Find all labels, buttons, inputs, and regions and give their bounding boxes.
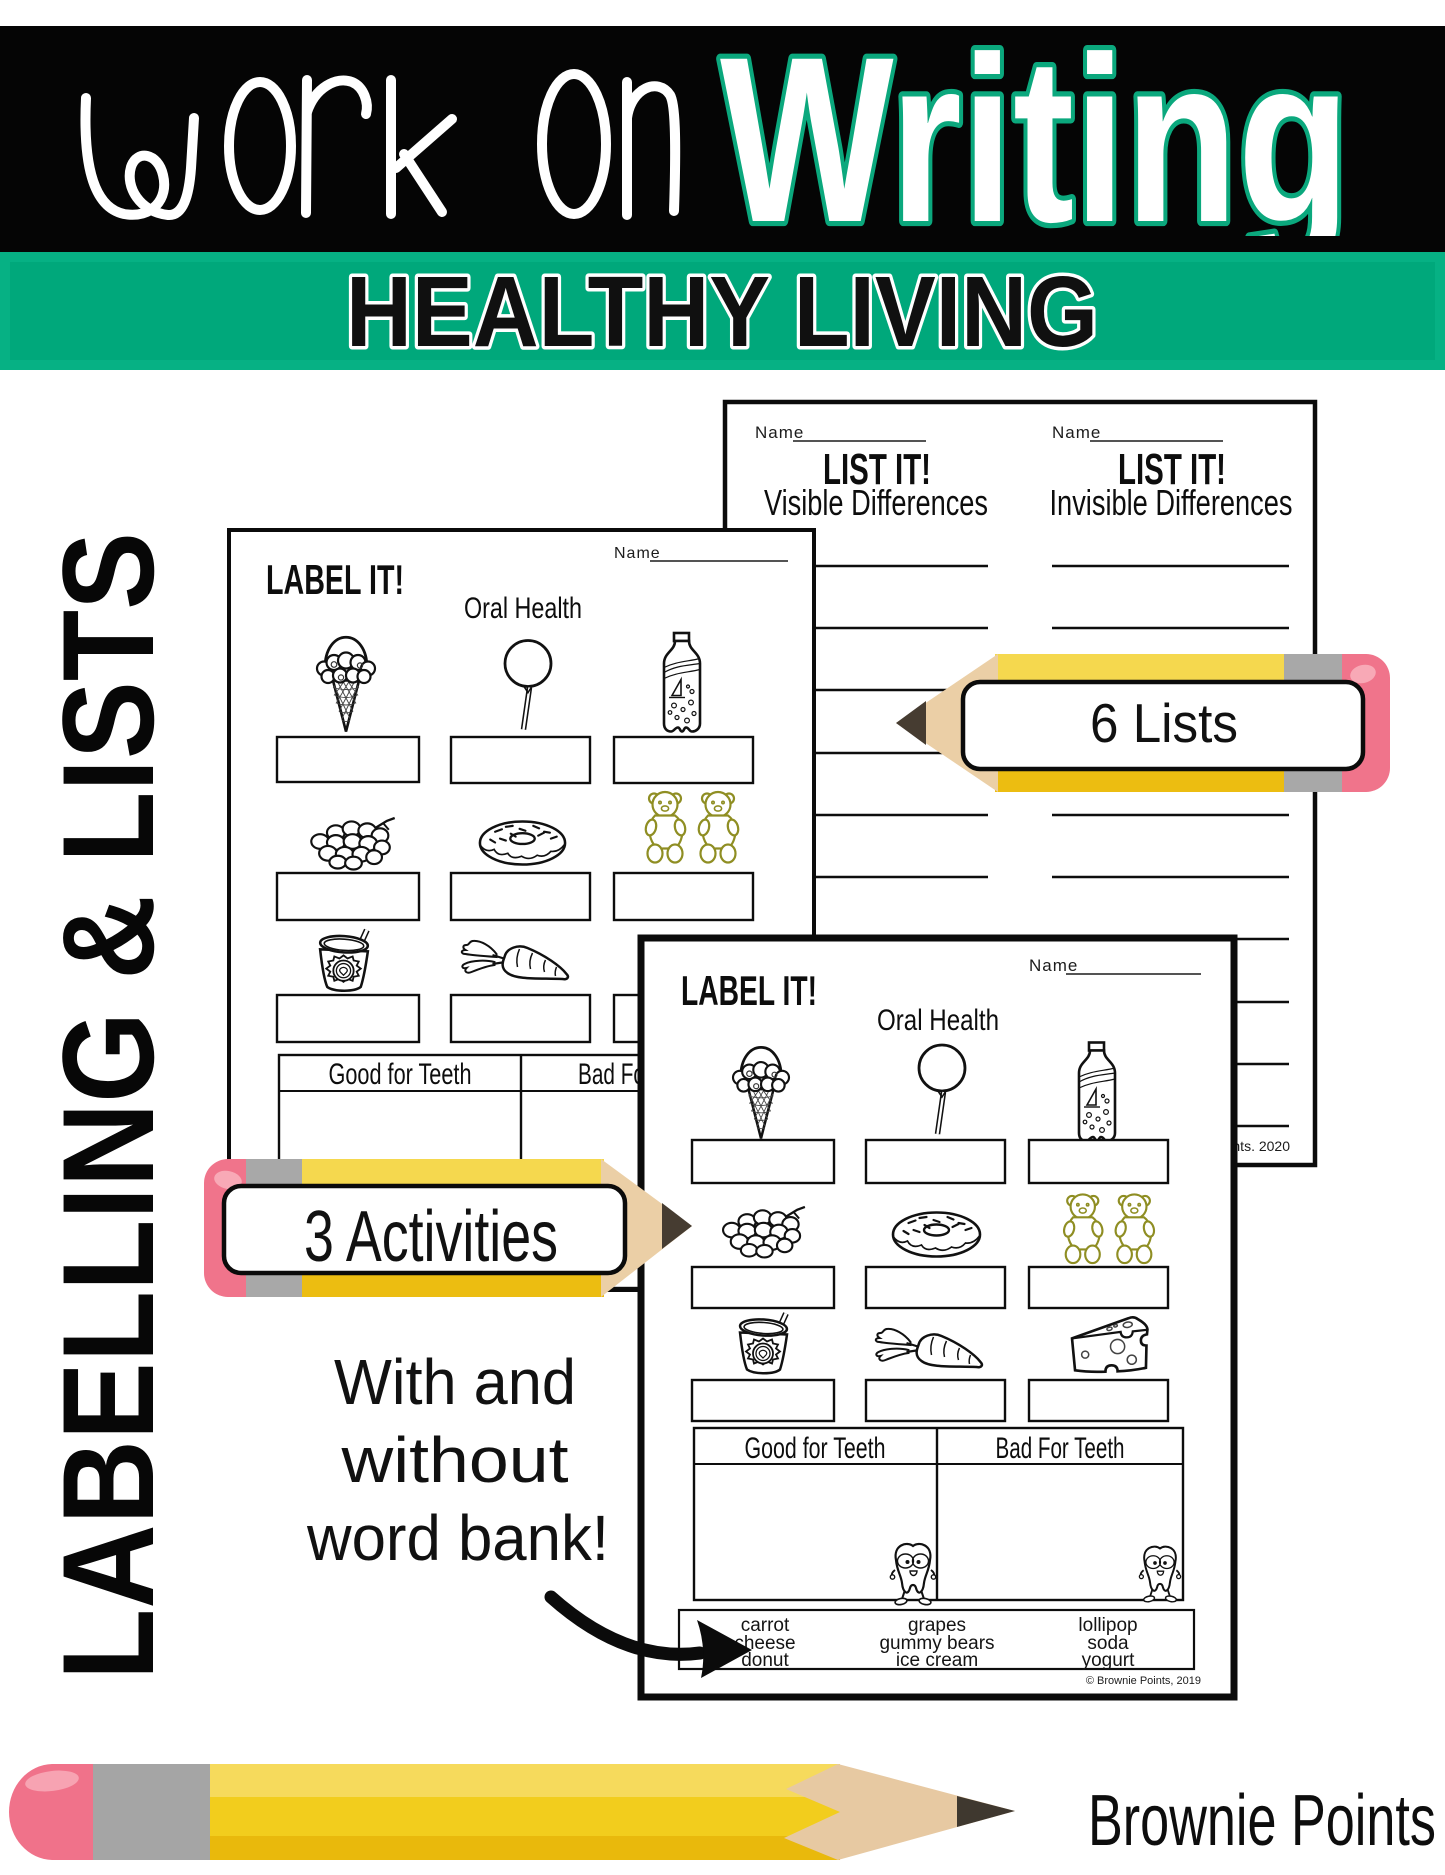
- svg-text:Invisible Differences: Invisible Differences: [1050, 482, 1293, 523]
- svg-text:LABEL IT!: LABEL IT!: [266, 556, 404, 603]
- svg-text:Bad For Teeth: Bad For Teeth: [996, 1432, 1125, 1465]
- svg-text:Oral Health: Oral Health: [464, 592, 582, 625]
- svg-text:LABELLING & LISTS: LABELLING & LISTS: [35, 532, 181, 1680]
- svg-text:6 Lists: 6 Lists: [1090, 692, 1238, 754]
- svg-text:Oral Health: Oral Health: [877, 1004, 999, 1037]
- svg-text:Name: Name: [1029, 956, 1078, 975]
- svg-text:With and: With and: [334, 1346, 576, 1418]
- svg-text:Name: Name: [614, 545, 661, 562]
- svg-text:Brownie Points: Brownie Points: [1088, 1781, 1436, 1861]
- svg-text:LABEL IT!: LABEL IT!: [681, 967, 817, 1014]
- svg-text:HEALTHY LIVING: HEALTHY LIVING: [346, 256, 1098, 368]
- svg-text:yogurt: yogurt: [1082, 1650, 1136, 1671]
- svg-text:word bank!: word bank!: [306, 1502, 609, 1574]
- svg-text:ice cream: ice cream: [896, 1650, 978, 1671]
- svg-text:© Brownie Points, 2019: © Brownie Points, 2019: [1086, 1675, 1201, 1687]
- svg-text:Name: Name: [755, 423, 804, 442]
- svg-text:Writing: Writing: [720, 8, 1350, 272]
- svg-text:donut: donut: [741, 1650, 789, 1671]
- svg-text:Visible Differences: Visible Differences: [764, 482, 988, 523]
- svg-text:Good for Teeth: Good for Teeth: [329, 1058, 472, 1091]
- svg-text:3 Activities: 3 Activities: [304, 1197, 558, 1277]
- svg-text:Good for Teeth: Good for Teeth: [745, 1432, 886, 1465]
- svg-text:without: without: [340, 1424, 568, 1496]
- svg-text:Name: Name: [1052, 423, 1101, 442]
